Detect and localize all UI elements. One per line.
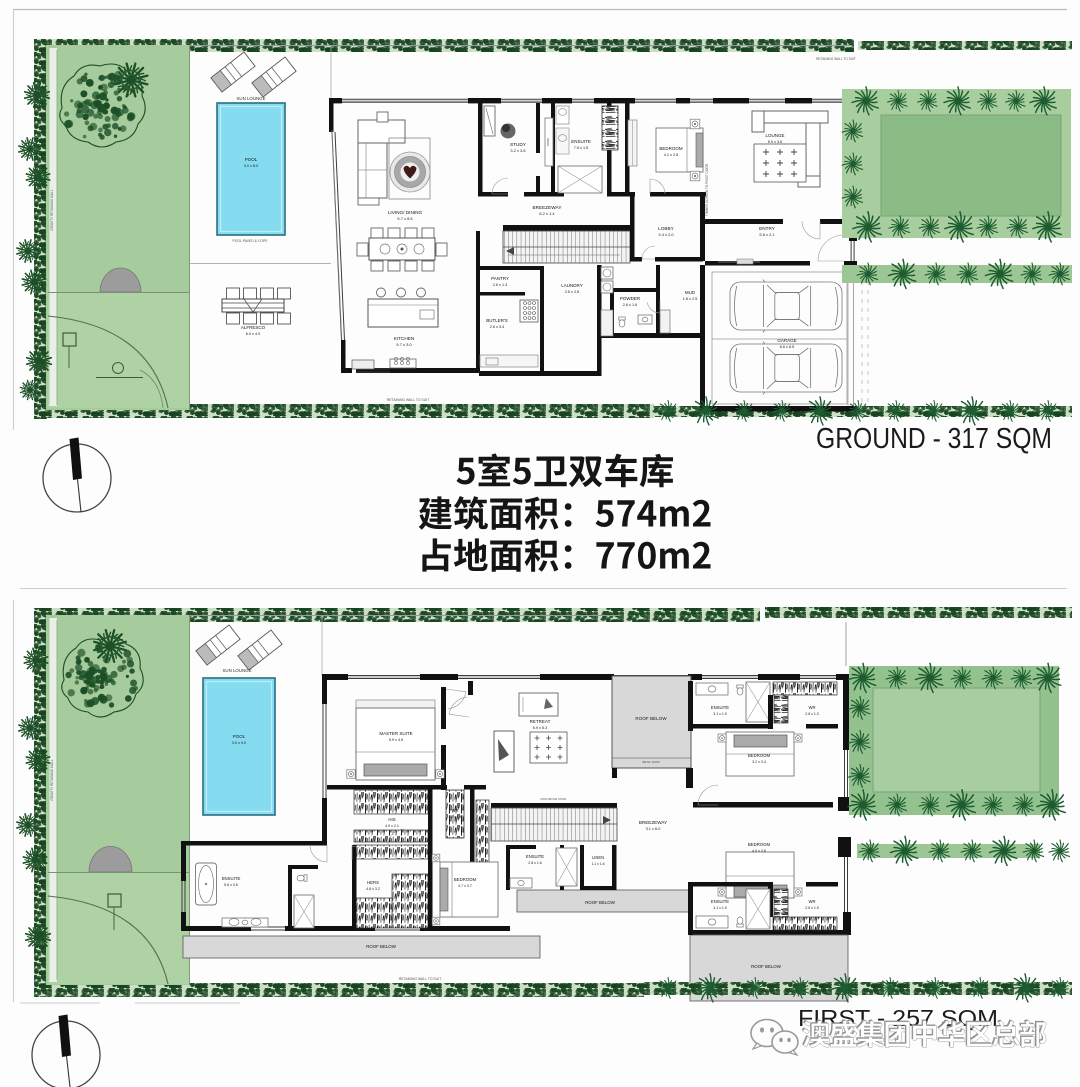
svg-text:GROUND - 317 SQM: GROUND - 317 SQM (816, 423, 1052, 455)
svg-text:5.9 x 4.5: 5.9 x 4.5 (389, 738, 403, 742)
svg-text:BEDROOM: BEDROOM (748, 753, 771, 758)
svg-text:WR: WR (809, 705, 816, 710)
svg-text:LIVING/ DINING: LIVING/ DINING (388, 210, 423, 215)
svg-text:SUN LOUNGE: SUN LOUNGE (236, 96, 265, 101)
svg-text:LAUNDRY: LAUNDRY (561, 283, 582, 288)
svg-text:POWDER: POWDER (620, 296, 641, 301)
svg-text:ENSUITE: ENSUITE (571, 139, 591, 144)
svg-text:3.7 x 3.7: 3.7 x 3.7 (458, 884, 472, 888)
svg-text:POOL: POOL (245, 157, 258, 162)
svg-text:1.1 x 1.6: 1.1 x 1.6 (591, 862, 604, 866)
svg-text:HERS: HERS (367, 880, 379, 885)
svg-text:5.7 x 3.0: 5.7 x 3.0 (396, 342, 412, 347)
svg-text:HIS: HIS (388, 817, 395, 822)
svg-text:RETREAT: RETREAT (530, 719, 551, 724)
svg-text:6.6 x 6.5: 6.6 x 6.5 (780, 345, 794, 349)
svg-text:ROOF BELOW: ROOF BELOW (585, 900, 616, 905)
svg-text:2.8 x 1.3: 2.8 x 1.3 (805, 712, 818, 716)
svg-text:VOID ABOVE STAIR: VOID ABOVE STAIR (540, 797, 566, 801)
svg-text:STUDY: STUDY (510, 142, 527, 147)
svg-text:ENSUITE: ENSUITE (711, 899, 729, 904)
svg-text:MUD: MUD (685, 290, 696, 295)
svg-text:TIMBER SCREEN TO PIVOT DOOR: TIMBER SCREEN TO PIVOT DOOR (705, 163, 709, 216)
svg-text:WR: WR (809, 899, 816, 904)
svg-text:BREEZEWAY: BREEZEWAY (639, 820, 667, 825)
svg-text:LOUNGE: LOUNGE (765, 133, 784, 138)
svg-text:BUTLER'S: BUTLER'S (486, 318, 508, 323)
svg-text:ROOF BELOW: ROOF BELOW (751, 964, 782, 969)
svg-text:GARAGE: GARAGE (777, 338, 796, 343)
svg-text:LINEN: LINEN (592, 855, 604, 860)
svg-text:5.9 x 5.3: 5.9 x 5.3 (533, 726, 547, 730)
svg-text:MASTER SUITE: MASTER SUITE (379, 731, 412, 736)
svg-text:3.4 x 2.0: 3.4 x 2.0 (658, 232, 674, 237)
svg-text:BEDROOM: BEDROOM (659, 146, 683, 151)
svg-text:6.0 x 4.9: 6.0 x 4.9 (246, 332, 260, 336)
svg-text:ROOF BELOW: ROOF BELOW (635, 716, 667, 721)
svg-text:POOL: POOL (233, 734, 246, 739)
svg-text:RETAINING WALL TO SUIT: RETAINING WALL TO SUIT (399, 977, 441, 981)
svg-text:ENSUITE: ENSUITE (526, 854, 544, 859)
svg-text:5.7 x 8.5: 5.7 x 8.5 (397, 216, 413, 221)
svg-text:3.2 x 3.6: 3.2 x 3.6 (510, 148, 526, 153)
svg-text:BEDROOM: BEDROOM (454, 877, 477, 882)
svg-text:ENTRY: ENTRY (759, 226, 776, 231)
svg-text:8.2 x 1.4: 8.2 x 1.4 (539, 211, 555, 216)
svg-text:GRAVITY RETAINING WALL: GRAVITY RETAINING WALL (50, 759, 54, 800)
svg-text:SUN LOUNGE: SUN LOUNGE (222, 668, 251, 673)
svg-text:ROOF BELOW: ROOF BELOW (366, 944, 397, 949)
svg-text:3.0 x 9.0: 3.0 x 9.0 (232, 741, 246, 745)
svg-text:2.6 x 1.6: 2.6 x 1.6 (623, 303, 637, 307)
svg-text:METAL ROOF: METAL ROOF (642, 760, 660, 764)
svg-text:5.9 x 3.6: 5.9 x 3.6 (768, 140, 782, 144)
svg-text:4.1 x 2.8: 4.1 x 2.8 (664, 153, 678, 157)
svg-text:ENSUITE: ENSUITE (222, 876, 241, 881)
svg-text:POOL PAVED & COPE: POOL PAVED & COPE (233, 239, 269, 243)
svg-text:BREEZEWAY: BREEZEWAY (533, 205, 563, 210)
svg-text:RETAINING WALL TO SUIT: RETAINING WALL TO SUIT (387, 398, 429, 402)
svg-text:ROBE: ROBE (546, 138, 550, 147)
svg-text:LOBBY: LOBBY (658, 226, 675, 231)
svg-text:3.1 x 6.0: 3.1 x 6.0 (646, 826, 661, 831)
svg-text:4.0 x 3.8: 4.0 x 3.8 (752, 849, 766, 853)
svg-text:3.1 x 1.9: 3.1 x 1.9 (713, 906, 726, 910)
svg-text:4.8 x 3.2: 4.8 x 3.2 (366, 887, 380, 891)
svg-text:RETAINING WALL TO SUIT: RETAINING WALL TO SUIT (816, 57, 856, 61)
svg-text:ENSUITE: ENSUITE (711, 705, 729, 710)
svg-text:5.6 x 3.6: 5.6 x 3.6 (224, 883, 238, 887)
svg-text:2.6 x 3.4: 2.6 x 3.4 (490, 325, 504, 329)
svg-text:7.5 x 1.5: 7.5 x 1.5 (574, 146, 588, 150)
svg-text:1.8 x 2.5: 1.8 x 2.5 (683, 297, 697, 301)
svg-text:GRAVITY RETAINING WALL: GRAVITY RETAINING WALL (50, 189, 54, 230)
svg-text:BEDROOM: BEDROOM (748, 842, 771, 847)
svg-text:ALFRESCO: ALFRESCO (241, 325, 266, 330)
svg-text:5.6 x 2.1: 5.6 x 2.1 (759, 232, 774, 237)
svg-text:3.1 x 1.9: 3.1 x 1.9 (713, 712, 726, 716)
svg-text:3.2 x 3.4: 3.2 x 3.4 (752, 760, 766, 764)
svg-text:1.5 x 2.4: 1.5 x 2.4 (448, 815, 461, 819)
svg-text:WR: WR (452, 808, 459, 813)
svg-text:3.0 x 8.0: 3.0 x 8.0 (244, 164, 258, 168)
svg-text:2.6 x 1.9: 2.6 x 1.9 (805, 906, 818, 910)
svg-text:4.0 x 2.1: 4.0 x 2.1 (385, 824, 399, 828)
svg-text:2.8 x 1.6: 2.8 x 1.6 (528, 861, 541, 865)
svg-text:2.5 x 2.8: 2.5 x 2.8 (565, 290, 579, 294)
svg-text:2.6 x 1.3: 2.6 x 1.3 (493, 283, 507, 287)
svg-text:KITCHEN: KITCHEN (394, 336, 415, 341)
svg-text:PANTRY: PANTRY (491, 276, 509, 281)
